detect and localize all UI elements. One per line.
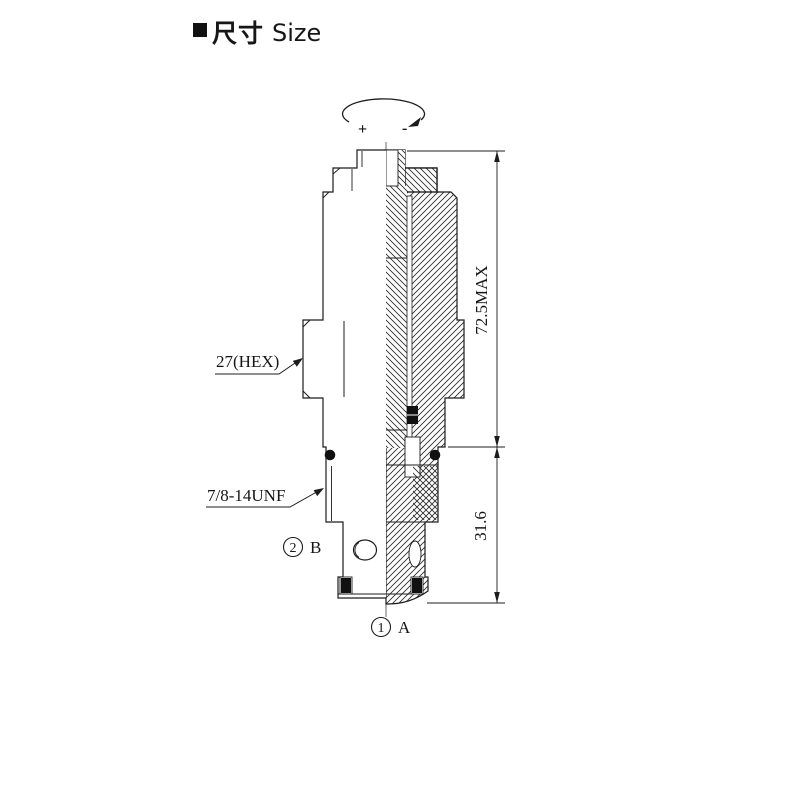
- port-b-number: 2: [290, 541, 297, 556]
- title-square-icon: [193, 23, 207, 37]
- dim-overall-text: 72.5MAX: [472, 265, 491, 334]
- callout-hex: 27(HEX): [215, 352, 303, 374]
- callout-hex-text: 27(HEX): [216, 352, 279, 371]
- arrow-down-icon: [494, 592, 500, 603]
- section-title: 尺寸 Size: [193, 19, 321, 48]
- dim-thread-text: 31.6: [471, 511, 490, 541]
- port-a-number: 1: [378, 621, 385, 636]
- title-en: Size: [272, 19, 321, 47]
- rotation-arrow-icon: [408, 117, 421, 127]
- plus-sign: +: [358, 121, 367, 138]
- title-cn: 尺寸: [212, 19, 264, 48]
- callout-thread: 7/8-14UNF: [206, 486, 324, 507]
- page: 尺寸 Size + -: [0, 0, 800, 800]
- dimension-drawing: 尺寸 Size + -: [0, 0, 800, 800]
- arrow-up-icon: [494, 447, 500, 458]
- section-inner-parts: [386, 150, 407, 448]
- port-b-letter: B: [310, 538, 321, 557]
- adjust-screw-socket: [386, 150, 398, 186]
- arrow-up-icon: [494, 151, 500, 162]
- leader-arrow-icon: [293, 358, 303, 367]
- port-window-section: [409, 541, 421, 567]
- oring-right: [430, 450, 441, 461]
- arrow-down-icon: [494, 436, 500, 447]
- callout-thread-text: 7/8-14UNF: [207, 486, 285, 505]
- port-b-hole: [354, 540, 377, 560]
- thread-crosshatch: [413, 466, 438, 520]
- rotation-arc: [343, 99, 425, 122]
- port-a-label: 1 A: [372, 618, 412, 638]
- rotation-direction-indicator: + -: [343, 99, 425, 138]
- minus-sign: -: [402, 120, 407, 137]
- dimension-31-6: 31.6: [427, 447, 505, 603]
- bottom-seal-right: [412, 578, 422, 593]
- port-b-label: 2 B: [284, 538, 322, 558]
- port-a-letter: A: [398, 618, 411, 637]
- section-locknut: [405, 168, 437, 192]
- leader-arrow-icon: [314, 488, 324, 496]
- oring-left: [325, 450, 336, 461]
- bottom-seal-left: [341, 578, 351, 593]
